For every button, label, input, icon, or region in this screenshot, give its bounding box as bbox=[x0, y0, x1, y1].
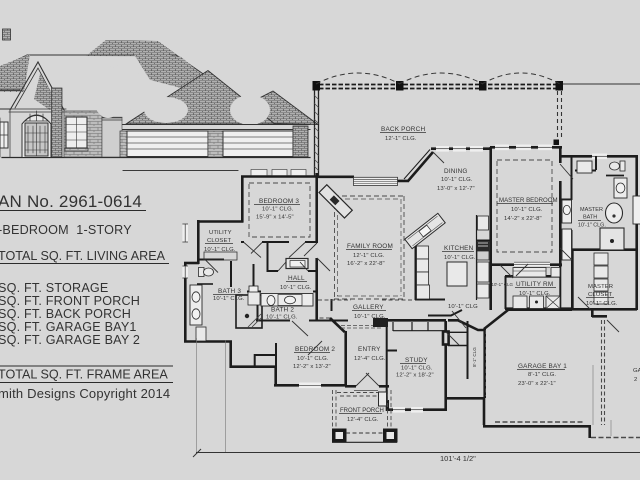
svg-text:BEDROOM 2: BEDROOM 2 bbox=[295, 346, 335, 353]
svg-text:MASTER BEDROOM: MASTER BEDROOM bbox=[499, 197, 558, 204]
svg-text:15'-9" x 14'-5": 15'-9" x 14'-5" bbox=[256, 215, 294, 221]
svg-text:10'-1" CLG.: 10'-1" CLG. bbox=[578, 223, 606, 229]
svg-text:10'-1" CLG.: 10'-1" CLG. bbox=[444, 255, 476, 261]
svg-text:101'-4 1/2": 101'-4 1/2" bbox=[440, 454, 476, 463]
svg-text:ENTRY: ENTRY bbox=[358, 346, 381, 353]
svg-text:8'-1" CLG: 8'-1" CLG bbox=[472, 347, 477, 367]
svg-text:10'-1" CLG.: 10'-1" CLG. bbox=[280, 285, 312, 291]
svg-text:GALLERY: GALLERY bbox=[353, 304, 384, 311]
svg-text:10'-1" CLG.: 10'-1" CLG. bbox=[213, 296, 245, 302]
svg-text:12'-2" x 18'-2": 12'-2" x 18'-2" bbox=[396, 373, 434, 379]
svg-text:23'-0" x 22'-1": 23'-0" x 22'-1" bbox=[518, 381, 556, 387]
svg-text:8'-1" CLG.: 8'-1" CLG. bbox=[528, 372, 556, 378]
svg-text:MASTER: MASTER bbox=[580, 207, 603, 213]
svg-text:-BEDROOM 1-STORY: -BEDROOM 1-STORY bbox=[0, 223, 132, 237]
svg-text:BATH: BATH bbox=[583, 215, 597, 221]
svg-text:BACK PORCH: BACK PORCH bbox=[381, 126, 425, 133]
svg-text:12'-2" x 13'-2": 12'-2" x 13'-2" bbox=[293, 364, 331, 370]
svg-text:10'-1" CLG.: 10'-1" CLG. bbox=[354, 314, 386, 320]
svg-text:KITCHEN: KITCHEN bbox=[444, 245, 474, 252]
svg-text:DINING: DINING bbox=[444, 168, 468, 175]
svg-text:STUDY: STUDY bbox=[405, 357, 428, 364]
svg-text:10'-1" CLG.: 10'-1" CLG. bbox=[401, 366, 433, 372]
svg-text:TOTAL SQ. FT. FRAME AREA: TOTAL SQ. FT. FRAME AREA bbox=[0, 368, 168, 382]
svg-text:SQ. FT. GARAGE BAY 2: SQ. FT. GARAGE BAY 2 bbox=[0, 333, 140, 347]
svg-text:10'-1" CLG.: 10'-1" CLG. bbox=[266, 315, 298, 321]
svg-text:10'-1" CLG: 10'-1" CLG bbox=[448, 304, 478, 310]
svg-text:16'-2" x 22'-8": 16'-2" x 22'-8" bbox=[347, 261, 385, 267]
svg-text:mith Designs Copyright 2014: mith Designs Copyright 2014 bbox=[0, 386, 170, 401]
svg-text:10'-1" CLG.: 10'-1" CLG. bbox=[297, 356, 329, 362]
svg-text:SQ. FT. BACK PORCH: SQ. FT. BACK PORCH bbox=[0, 307, 131, 321]
svg-text:BATH 2: BATH 2 bbox=[271, 307, 294, 314]
svg-text:SQ. FT. STORAGE: SQ. FT. STORAGE bbox=[0, 281, 109, 295]
svg-text:10'-1" CLG.: 10'-1" CLG. bbox=[586, 301, 618, 307]
svg-text:GA: GA bbox=[633, 368, 640, 374]
svg-text:GARAGE BAY 1: GARAGE BAY 1 bbox=[518, 363, 567, 370]
svg-text:10'-1" CLG.: 10'-1" CLG. bbox=[204, 247, 236, 253]
svg-text:12'-4" CLG.: 12'-4" CLG. bbox=[347, 417, 379, 423]
svg-text:SQ. FT. GARAGE BAY1: SQ. FT. GARAGE BAY1 bbox=[0, 320, 137, 334]
svg-text:TOTAL SQ. FT. LIVING AREA: TOTAL SQ. FT. LIVING AREA bbox=[0, 249, 166, 263]
svg-text:BEDROOM 3: BEDROOM 3 bbox=[259, 198, 299, 205]
svg-text:10'-1" CLG.: 10'-1" CLG. bbox=[262, 207, 294, 213]
svg-text:UTILITY RM: UTILITY RM bbox=[516, 281, 553, 288]
svg-text:12'-1" CLG.: 12'-1" CLG. bbox=[385, 136, 417, 142]
svg-text:HALL: HALL bbox=[288, 275, 305, 282]
svg-text:BATH 3: BATH 3 bbox=[218, 288, 241, 295]
svg-text:10'-1" CLG.: 10'-1" CLG. bbox=[519, 291, 551, 297]
svg-text:12'-1" CLG.: 12'-1" CLG. bbox=[353, 253, 385, 259]
svg-text:10'-1" CLG.: 10'-1" CLG. bbox=[511, 207, 543, 213]
svg-text:AN No. 2961-0614: AN No. 2961-0614 bbox=[0, 192, 142, 211]
svg-text:2: 2 bbox=[634, 377, 637, 383]
svg-text:12'-4" CLG.: 12'-4" CLG. bbox=[354, 356, 386, 362]
svg-text:SQ. FT. FRONT PORCH: SQ. FT. FRONT PORCH bbox=[0, 294, 140, 308]
svg-text:14'-2" x 22'-8": 14'-2" x 22'-8" bbox=[504, 216, 542, 222]
svg-text:FAMILY ROOM: FAMILY ROOM bbox=[347, 243, 393, 250]
svg-text:10'-1" CLG.: 10'-1" CLG. bbox=[441, 177, 473, 183]
svg-text:CLOSET: CLOSET bbox=[588, 292, 612, 298]
svg-text:13'-0" x 12'-7": 13'-0" x 12'-7" bbox=[437, 186, 475, 192]
svg-text:MASTER: MASTER bbox=[588, 284, 613, 290]
svg-text:CLOSET: CLOSET bbox=[207, 238, 231, 244]
svg-text:UTILITY: UTILITY bbox=[209, 230, 232, 236]
svg-text:FRONT PORCH: FRONT PORCH bbox=[340, 408, 384, 414]
svg-text:10'-1" CLG: 10'-1" CLG bbox=[492, 282, 514, 287]
